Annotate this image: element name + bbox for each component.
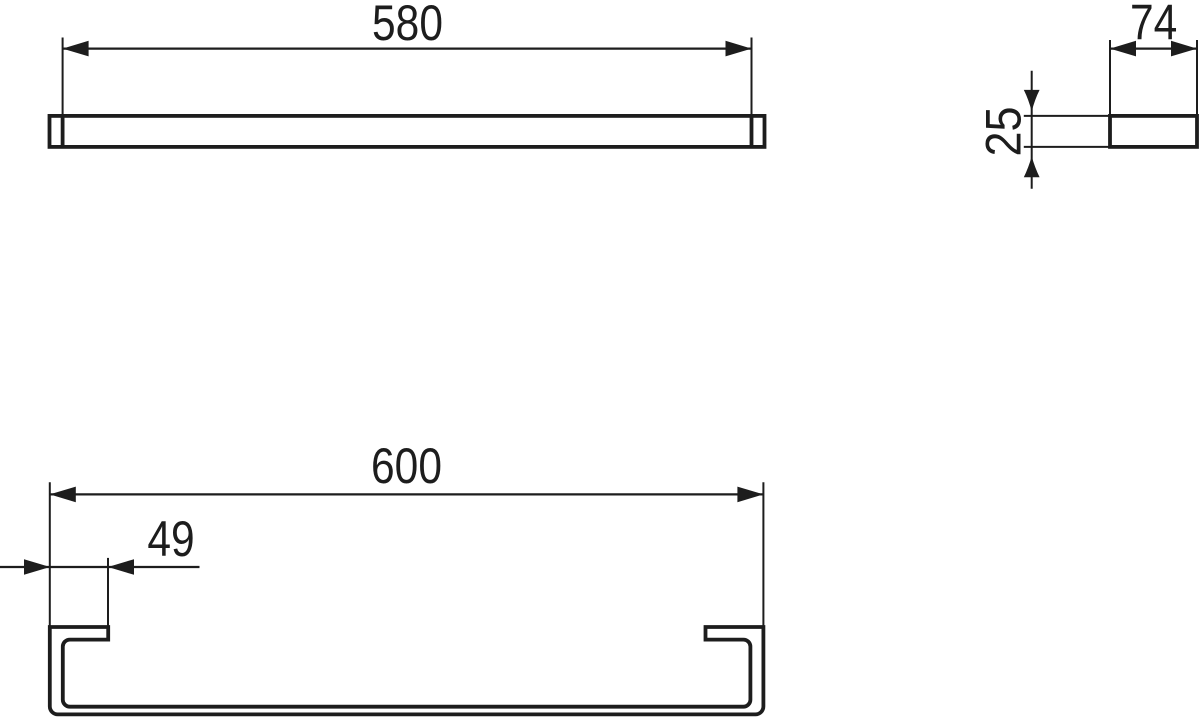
svg-text:49: 49 — [147, 511, 194, 567]
svg-text:580: 580 — [372, 0, 443, 51]
svg-text:74: 74 — [1130, 0, 1177, 50]
svg-text:600: 600 — [371, 438, 442, 494]
svg-text:25: 25 — [976, 106, 1032, 156]
